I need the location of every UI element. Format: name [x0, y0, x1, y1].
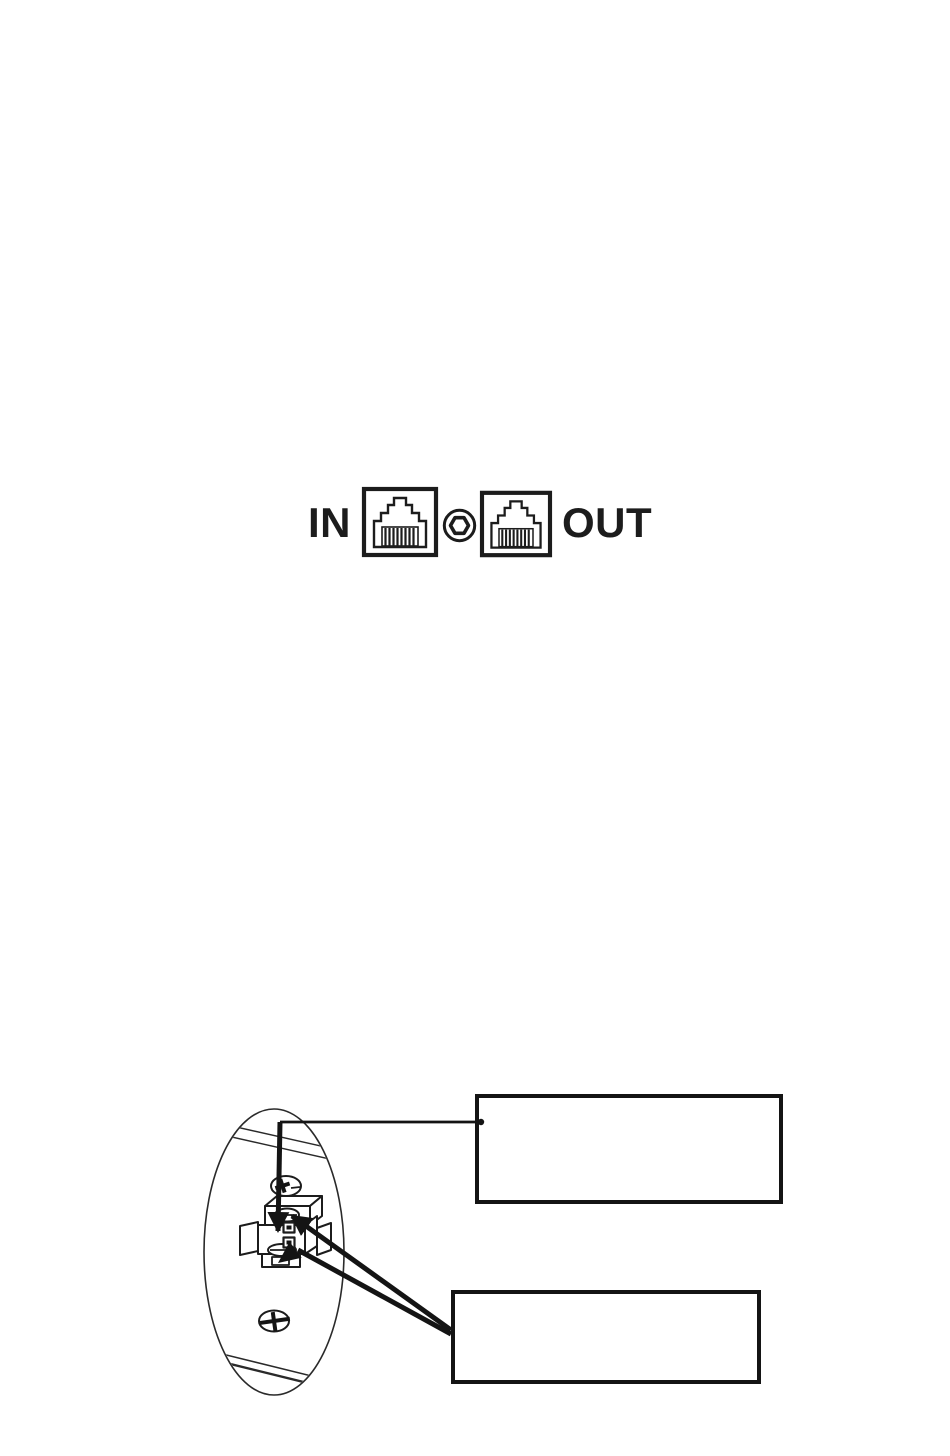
callout-leader-line [280, 1119, 484, 1125]
callout-box-bottom [451, 1290, 761, 1384]
down-arrow-icon [278, 1122, 280, 1231]
manual-page: { "page": { "background": "#ffffff", "in… [0, 0, 950, 1456]
figure-rear-panel: IN OUT [0, 0, 950, 110]
rj45-out-port-icon [479, 490, 553, 558]
callout-box-top [475, 1094, 783, 1204]
rj45-in-port-icon [361, 486, 439, 558]
out-port-label: OUT [562, 502, 652, 544]
jack-nut-icon [441, 507, 478, 544]
phillips-screw-top-icon [271, 1176, 301, 1196]
in-port-label: IN [308, 502, 351, 544]
